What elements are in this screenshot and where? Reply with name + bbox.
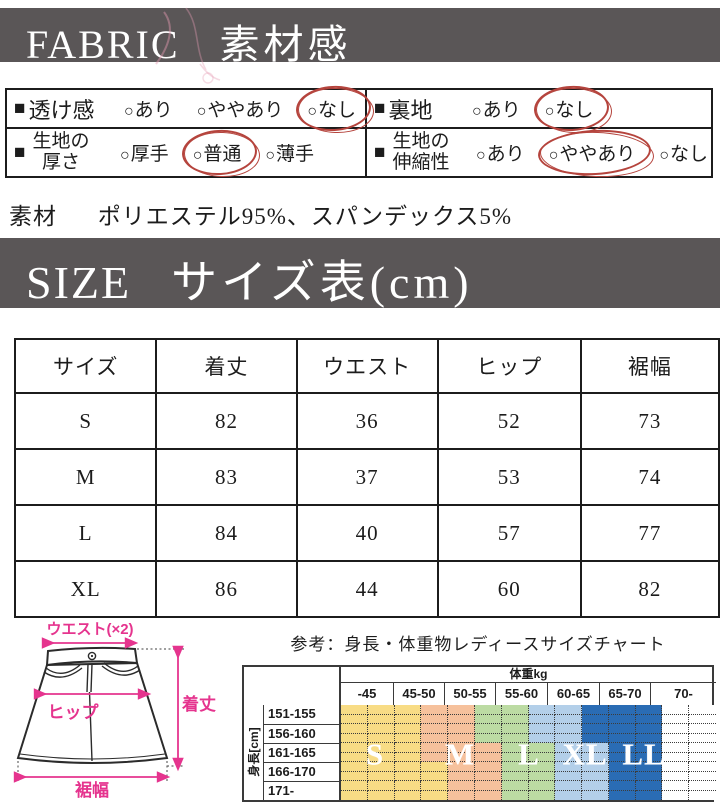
size-zone-cell	[502, 772, 529, 782]
fabric-options: ○あり○なし	[470, 95, 595, 122]
size-name-cell: L	[15, 505, 156, 561]
size-zone-cell	[609, 715, 636, 725]
height-range-cell: 156-160	[264, 724, 339, 743]
product-spec-sheet: FABRIC 素材感 ■透け感○あり○ややあり○なし■裏地○あり○なし■生地の厚…	[0, 0, 720, 806]
size-zone-cell	[582, 791, 609, 801]
size-zone-cell	[555, 715, 582, 725]
fabric-cell: ■裏地○あり○なし	[365, 90, 711, 127]
size-zone-cell	[502, 724, 529, 734]
size-zone-cell	[689, 743, 716, 753]
option-text: あり	[135, 100, 173, 121]
size-zone-cell	[555, 705, 582, 715]
weight-range-cell: 50-55	[444, 683, 495, 705]
size-header-en: SIZE	[26, 256, 131, 309]
material-label: 素材	[9, 204, 57, 229]
fabric-options: ○あり○ややあり○なし	[474, 139, 710, 166]
size-zone-cell	[421, 791, 448, 801]
fabric-spec-table: ■透け感○あり○ややあり○なし■裏地○あり○なし■生地の厚さ○厚手○普通○薄手■…	[5, 88, 713, 178]
radio-circle-icon: ○	[472, 103, 482, 120]
fabric-attribute-line: 生地の	[392, 132, 449, 153]
size-value-cell: 44	[297, 561, 438, 617]
size-table-row: S82365273	[15, 393, 719, 449]
selected-option: ○普通	[191, 139, 244, 166]
size-value-cell: 77	[581, 505, 719, 561]
size-zone-cell	[662, 705, 689, 715]
size-zone-cell	[395, 791, 422, 801]
size-zone-cell	[475, 724, 502, 734]
option-text: ややあり	[207, 100, 283, 121]
radio-circle-icon: ○	[124, 103, 134, 120]
size-zone-cell	[341, 734, 368, 744]
size-zone-cell	[555, 724, 582, 734]
height-unit-cell: 身長[cm]	[244, 705, 264, 800]
size-table-row: XL86446082	[15, 561, 719, 617]
size-zone-cell	[395, 753, 422, 763]
weight-range-cell: 60-65	[547, 683, 599, 705]
fabric-attribute-text: 透け感	[28, 93, 94, 125]
height-range-cell: 151-155	[264, 705, 339, 724]
size-zone-cell	[689, 705, 716, 715]
size-name-cell: M	[15, 449, 156, 505]
size-column-header: 着丈	[156, 339, 296, 393]
size-zone-cell	[502, 791, 529, 801]
selected-option: ○なし	[543, 95, 596, 122]
weight-range-cell: -45	[339, 683, 393, 705]
size-zone-cell	[341, 791, 368, 801]
size-zone-cell	[636, 715, 663, 725]
size-table-body: S82365273M83375374L84405777XL86446082	[15, 393, 719, 617]
square-bullet-icon: ■	[374, 142, 385, 164]
size-zone-cell	[609, 781, 636, 791]
radio-circle-icon: ○	[307, 103, 317, 120]
size-zone-cell	[341, 781, 368, 791]
size-zone-cell	[448, 715, 475, 725]
size-value-cell: 74	[581, 449, 719, 505]
size-value-cell: 57	[438, 505, 581, 561]
size-zone-cell	[689, 772, 716, 782]
size-value-cell: 60	[438, 561, 581, 617]
size-zone-cell	[341, 705, 368, 715]
selected-option: ○ややあり	[547, 139, 638, 166]
size-zone-cell	[421, 772, 448, 782]
radio-circle-icon: ○	[197, 103, 207, 120]
height-range-cell: 166-170	[264, 762, 339, 781]
fabric-attribute-label: ■裏地	[374, 93, 470, 125]
size-letter: XL	[562, 737, 607, 773]
size-zone-cell	[529, 791, 556, 801]
size-section-header: SIZE サイズ表(cm)	[0, 238, 720, 308]
size-zone-cell	[475, 791, 502, 801]
hem-leader-dotted-lines	[18, 761, 167, 782]
height-unit-label: 身長[cm]	[244, 702, 264, 802]
size-zone-cell	[689, 715, 716, 725]
fabric-attribute-text: 生地の厚さ	[32, 132, 89, 173]
size-letter: LL	[622, 737, 665, 773]
fabric-attribute-line: 厚さ	[32, 153, 89, 174]
size-name-cell: S	[15, 393, 156, 449]
size-zone-cell	[662, 743, 689, 753]
size-zone-cell	[609, 791, 636, 801]
fabric-header-en: FABRIC	[26, 21, 180, 68]
size-zone-cell	[475, 762, 502, 772]
size-letter: L	[518, 737, 540, 773]
reference-size-chart: 体重kg -4545-5050-5555-6060-6565-7070- 身長[…	[242, 665, 714, 802]
size-zone-cell	[341, 715, 368, 725]
size-zone-cell	[421, 715, 448, 725]
size-zone-cell	[502, 715, 529, 725]
fabric-cell: ■生地の厚さ○厚手○普通○薄手	[7, 127, 365, 176]
size-zone-cell	[448, 705, 475, 715]
size-zone-cell	[421, 781, 448, 791]
size-zone-cell	[368, 724, 395, 734]
size-zone-cell	[529, 705, 556, 715]
square-bullet-icon: ■	[14, 98, 25, 120]
square-bullet-icon: ■	[14, 142, 25, 164]
material-value: ポリエステル95%、スパンデックス5%	[98, 204, 512, 229]
size-column-header: ウエスト	[297, 339, 438, 393]
reference-chart-body: 身長[cm] 151-155156-160161-165166-170171- …	[244, 705, 716, 800]
size-zone-cell	[341, 772, 368, 782]
size-zone-cell	[529, 781, 556, 791]
size-table-row: L84405777	[15, 505, 719, 561]
size-value-cell: 52	[438, 393, 581, 449]
option-text: 薄手	[276, 144, 314, 165]
size-zone-cell	[609, 772, 636, 782]
option: ○厚手	[118, 139, 171, 166]
size-value-cell: 37	[297, 449, 438, 505]
size-zone-cell	[555, 772, 582, 782]
size-value-cell: 36	[297, 393, 438, 449]
square-bullet-icon: ■	[374, 98, 385, 120]
size-zone-cell	[689, 791, 716, 801]
size-zone-cell	[662, 762, 689, 772]
size-zone-cell	[636, 772, 663, 782]
size-zone-cell	[475, 705, 502, 715]
fabric-attribute-label: ■透け感	[14, 93, 122, 125]
skirt-measurement-diagram: ウエスト(×2) ヒップ 着丈 裾幅	[0, 616, 240, 806]
length-label: 着丈	[181, 694, 216, 714]
size-table-wrap: サイズ着丈ウエストヒップ裾幅 S82365273M83375374L844057…	[14, 338, 720, 618]
radio-circle-icon: ○	[545, 103, 555, 120]
option-text: なし	[555, 100, 593, 121]
size-zone-cell	[662, 781, 689, 791]
reference-chart-title: 参考：身長・体重物レディースサイズチャート	[242, 630, 714, 655]
size-zone-cell	[341, 724, 368, 734]
size-zone-cell	[395, 762, 422, 772]
radio-circle-icon: ○	[265, 147, 275, 164]
radio-circle-icon: ○	[193, 147, 203, 164]
size-header-ja: サイズ表(cm)	[171, 246, 472, 312]
option-text: 普通	[203, 144, 241, 165]
size-zone-cell	[368, 705, 395, 715]
radio-circle-icon: ○	[549, 147, 559, 164]
size-value-cell: 82	[581, 561, 719, 617]
hip-label: ヒップ	[48, 702, 100, 722]
size-zone-cell	[689, 762, 716, 772]
fabric-header-ja: 素材感	[220, 12, 352, 70]
size-zone-cell	[421, 705, 448, 715]
size-zone-cell	[395, 743, 422, 753]
size-zone-cell	[475, 753, 502, 763]
size-zone-cell	[662, 791, 689, 801]
radio-circle-icon: ○	[659, 147, 669, 164]
size-letter: M	[445, 737, 475, 773]
size-zone-cell	[368, 781, 395, 791]
size-zone-cell	[582, 781, 609, 791]
size-value-cell: 82	[156, 393, 296, 449]
size-zone-cell	[341, 762, 368, 772]
size-column-header: サイズ	[15, 339, 156, 393]
size-table-row: M83375374	[15, 449, 719, 505]
size-zone-cell	[475, 734, 502, 744]
size-zone-cell	[636, 724, 663, 734]
size-table-header-row: サイズ着丈ウエストヒップ裾幅	[15, 339, 719, 393]
size-column-header: ヒップ	[438, 339, 581, 393]
size-value-cell: 86	[156, 561, 296, 617]
size-zone-cell	[341, 743, 368, 753]
weight-range-cell: 70-	[650, 683, 716, 705]
option-text: あり	[487, 144, 525, 165]
fabric-attribute-line: 生地の	[32, 132, 89, 153]
size-zone-cell	[555, 791, 582, 801]
size-zone-cell	[475, 772, 502, 782]
fabric-attribute-text: 裏地	[388, 93, 432, 125]
size-zone-cell	[395, 772, 422, 782]
size-value-cell: 40	[297, 505, 438, 561]
size-zone-cell	[421, 724, 448, 734]
size-zone-cell	[689, 734, 716, 744]
size-zone-cell	[636, 781, 663, 791]
size-column-header: 裾幅	[581, 339, 719, 393]
size-zone-cell	[448, 724, 475, 734]
size-zone-cell	[341, 753, 368, 763]
size-zone-cell	[502, 781, 529, 791]
fabric-cell: ■透け感○あり○ややあり○なし	[7, 90, 365, 127]
option: ○あり	[474, 139, 527, 166]
weight-range-cell: 65-70	[599, 683, 650, 705]
fabric-attribute-line: 伸縮性	[392, 153, 449, 174]
fabric-attribute-text: 生地の伸縮性	[392, 132, 449, 173]
option-text: あり	[483, 100, 521, 121]
size-zone-cell	[662, 724, 689, 734]
size-value-cell: 84	[156, 505, 296, 561]
size-zone-cell	[395, 734, 422, 744]
size-zone-cell	[448, 781, 475, 791]
height-range-cell: 161-165	[264, 743, 339, 762]
size-zone-cell	[395, 715, 422, 725]
size-value-cell: 83	[156, 449, 296, 505]
size-zone-cell	[662, 772, 689, 782]
size-zone-cell	[395, 781, 422, 791]
size-zone-cell	[475, 781, 502, 791]
size-zone-cell	[662, 715, 689, 725]
weight-range-cell: 45-50	[393, 683, 444, 705]
size-name-cell: XL	[15, 561, 156, 617]
option: ○あり	[122, 95, 175, 122]
option-text: 厚手	[131, 144, 169, 165]
fabric-section-header: FABRIC 素材感	[0, 8, 720, 62]
radio-circle-icon: ○	[476, 147, 486, 164]
material-line: 素材 ポリエステル95%、スパンデックス5%	[9, 197, 512, 231]
size-zone-cell	[636, 705, 663, 715]
fabric-attribute-label: ■生地の厚さ	[14, 132, 118, 173]
fabric-cell: ■生地の伸縮性○あり○ややあり○なし	[365, 127, 711, 176]
size-zone-cell	[689, 781, 716, 791]
option: ○ややあり	[195, 95, 286, 122]
size-zone-cell	[502, 705, 529, 715]
option: ○あり	[470, 95, 523, 122]
size-zone-cell	[368, 791, 395, 801]
fabric-options: ○あり○ややあり○なし	[122, 95, 358, 122]
size-zone-cell	[636, 791, 663, 801]
size-zone-cell	[689, 753, 716, 763]
size-zone-cell	[662, 753, 689, 763]
size-letter: S	[366, 737, 384, 773]
option: ○なし	[657, 139, 710, 166]
option-text: ややあり	[559, 144, 635, 165]
size-zone-cell	[582, 772, 609, 782]
size-zone-cell	[582, 705, 609, 715]
size-zone-cell	[689, 724, 716, 734]
hem-label: 裾幅	[75, 780, 109, 800]
size-value-cell: 53	[438, 449, 581, 505]
waist-label: ウエスト(×2)	[46, 621, 133, 638]
size-zone-cell	[448, 772, 475, 782]
size-zone-cell	[475, 743, 502, 753]
size-zone-cell	[475, 715, 502, 725]
size-zone-cell	[555, 781, 582, 791]
weight-header-cell: 体重kg	[339, 667, 716, 683]
size-zone-cell	[529, 715, 556, 725]
size-value-cell: 73	[581, 393, 719, 449]
option-text: なし	[670, 144, 708, 165]
selected-option: ○なし	[305, 95, 358, 122]
size-zone-cell	[395, 705, 422, 715]
height-range-cell: 171-	[264, 781, 339, 800]
size-zone-cell	[368, 715, 395, 725]
size-table: サイズ着丈ウエストヒップ裾幅 S82365273M83375374L844057…	[14, 338, 720, 618]
size-zone-cell	[529, 772, 556, 782]
size-zone-cell	[395, 724, 422, 734]
option: ○薄手	[263, 139, 316, 166]
fabric-attribute-label: ■生地の伸縮性	[374, 132, 474, 173]
fabric-options: ○厚手○普通○薄手	[118, 139, 316, 166]
size-zone-cell	[662, 734, 689, 744]
option-text: なし	[318, 100, 356, 121]
size-zone-cell	[368, 772, 395, 782]
radio-circle-icon: ○	[120, 147, 130, 164]
size-zone-cell	[448, 791, 475, 801]
weight-range-cell: 55-60	[495, 683, 547, 705]
size-zone-cell	[582, 715, 609, 725]
size-zone-cell	[529, 724, 556, 734]
size-zone-cell	[582, 724, 609, 734]
size-zone-cell	[609, 724, 636, 734]
size-zone-cell	[609, 705, 636, 715]
